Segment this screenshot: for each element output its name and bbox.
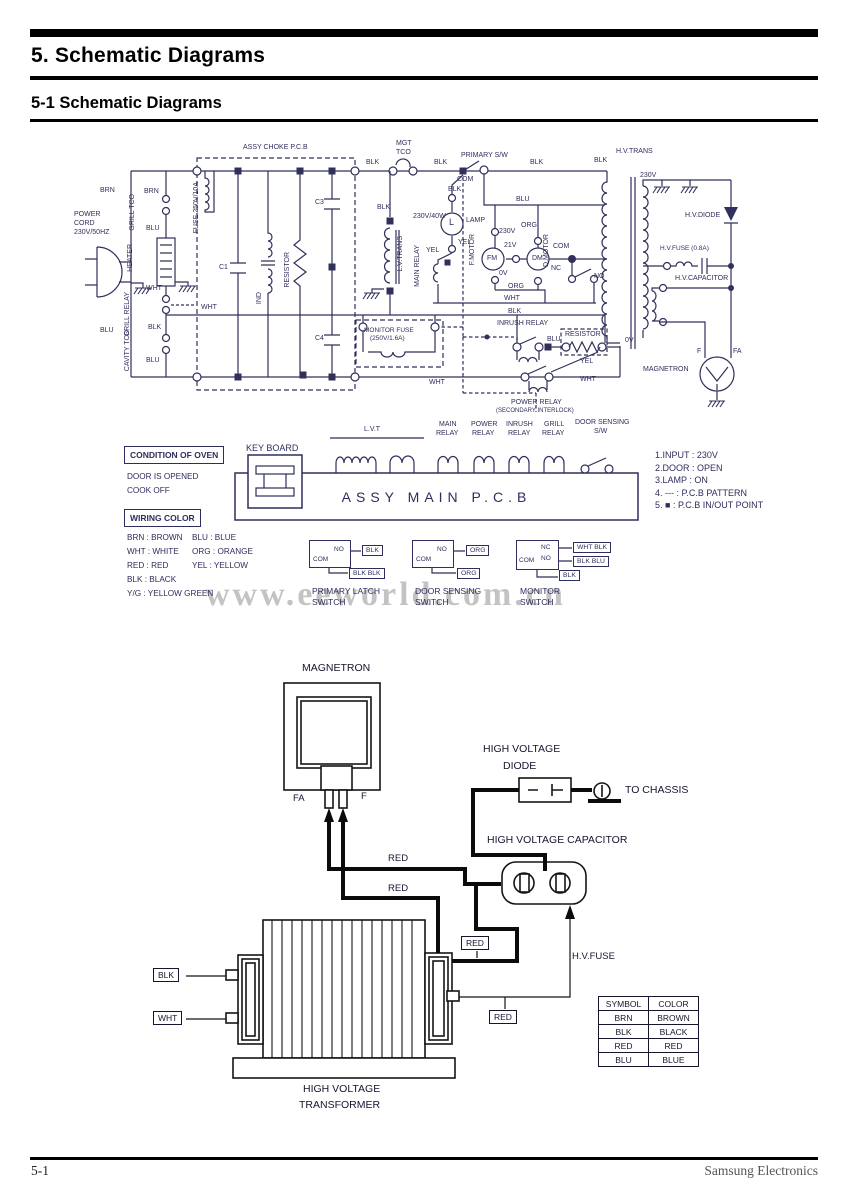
schematic-label: (SECONDARY INTERLOCK) <box>496 408 574 414</box>
schematic-label: INRUSH RELAY <box>497 320 548 327</box>
terminal-label: NO <box>437 546 447 553</box>
monitor-switch-box <box>516 540 559 570</box>
schematic-label: HEATER <box>127 244 134 272</box>
wiring-color-entry: YEL : YELLOW <box>192 559 253 573</box>
schematic-label: GRILL TCO <box>129 194 136 231</box>
magnetron-title: MAGNETRON <box>302 662 370 674</box>
schematic-label: H.V.DIODE <box>685 212 720 219</box>
condition-line: COOK OFF <box>127 484 198 498</box>
wiring-color-entry: ORG : ORANGE <box>192 545 253 559</box>
schematic-label: 21V <box>504 242 516 249</box>
switch-caption: MONITORSWITCH <box>520 586 560 608</box>
schematic-label: C4 <box>315 335 324 342</box>
schematic-label: BLK <box>377 204 390 211</box>
table-cell: BLUE <box>649 1053 699 1067</box>
switch-caption: DOOR SENSINGSWITCH <box>415 586 481 608</box>
hv-capacitor-label: HIGH VOLTAGE CAPACITOR <box>487 834 627 846</box>
terminal-label: NO <box>334 546 344 553</box>
schematic-label: BRN <box>144 188 159 195</box>
condition-of-oven-lines: DOOR IS OPENEDCOOK OFF <box>127 470 198 498</box>
table-cell: BROWN <box>649 1011 699 1025</box>
schematic-label: BLU <box>146 357 160 364</box>
red-tag: RED <box>489 1010 517 1024</box>
note-line: 4. --- : P.C.B PATTERN <box>655 487 763 500</box>
schematic-label: NO <box>594 273 605 280</box>
wiring-color-entry: BLK : BLACK <box>127 573 213 587</box>
schematic-label: GRILL <box>544 421 564 428</box>
terminal-label: NC <box>541 544 550 551</box>
schematic-label: BRN <box>100 187 115 194</box>
table-header: SYMBOL <box>599 997 649 1011</box>
table-cell: BLACK <box>649 1025 699 1039</box>
wire-tag: BLK BLK <box>349 568 385 579</box>
manual-page: 5. Schematic Diagrams 5-1 Schematic Diag… <box>0 0 849 1193</box>
wht-tag: WHT <box>153 1011 182 1025</box>
table-cell: BLK <box>599 1025 649 1039</box>
schematic-label: MAIN RELAY <box>414 245 421 287</box>
schematic-label: 230V/40W <box>413 213 446 220</box>
schematic-label: COM <box>553 243 569 250</box>
table-cell: BRN <box>599 1011 649 1025</box>
notes-list: 1.INPUT : 230V2.DOOR : OPEN3.LAMP : ON4.… <box>655 449 763 512</box>
schematic-label: FM <box>487 255 497 262</box>
assy-main-pcb-label: ASSY MAIN P.C.B <box>235 489 638 505</box>
schematic-label: BLU <box>146 225 160 232</box>
to-chassis-label: TO CHASSIS <box>625 784 688 796</box>
hv-fuse-label: H.V.FUSE <box>572 951 615 962</box>
schematic-label: BLK <box>366 159 379 166</box>
terminal-label: COM <box>416 556 431 563</box>
schematic-label: POWER <box>74 211 100 218</box>
schematic-label: BLK <box>434 159 447 166</box>
schematic-label: ORG <box>508 283 524 290</box>
schematic-label: TCO <box>396 149 411 156</box>
wire-tag: WHT BLK <box>573 542 611 553</box>
note-line: 2.DOOR : OPEN <box>655 462 763 475</box>
schematic-label: RESISTOR <box>565 331 601 338</box>
schematic-label: F.MOTOR <box>469 234 476 265</box>
schematic-label: C1 <box>219 264 228 271</box>
schematic-label: YEL <box>426 247 439 254</box>
schematic-label: BLK <box>530 159 543 166</box>
symbol-color-table: SYMBOLCOLORBRNBROWNBLKBLACKREDREDBLUBLUE <box>598 996 699 1067</box>
schematic-label: WHT <box>580 376 596 383</box>
schematic-label: RELAY <box>472 430 494 437</box>
table-header: COLOR <box>649 997 699 1011</box>
schematic-label: MGT <box>396 140 412 147</box>
f-label: F <box>361 791 367 802</box>
schematic-label: (250V/1.6A) <box>370 336 405 343</box>
schematic-label: WHT <box>504 295 520 302</box>
schematic-label: RELAY <box>508 430 530 437</box>
note-line: 5. ■ : P.C.B IN/OUT POINT <box>655 499 763 512</box>
schematic-label: POWER RELAY <box>511 399 562 406</box>
table-row: BLKBLACK <box>599 1025 699 1039</box>
condition-line: DOOR IS OPENED <box>127 470 198 484</box>
wire-tag: BLK <box>362 545 383 556</box>
schematic-label: BLK <box>448 186 461 193</box>
wire-tag: BLK BLU <box>573 556 609 567</box>
hv-diode-label-1: HIGH VOLTAGE <box>483 743 560 755</box>
schematic-label: H.V.FUSE (0.8A) <box>660 246 709 253</box>
hv-transformer-label-2: TRANSFORMER <box>299 1099 380 1111</box>
red-wire-label: RED <box>388 883 408 894</box>
schematic-label: S/W <box>594 428 607 435</box>
wiring-color-col2: BLU : BLUEORG : ORANGEYEL : YELLOW <box>192 531 253 573</box>
schematic-label: IND <box>256 292 263 304</box>
schematic-label: MAIN <box>439 421 457 428</box>
table-row: BLUBLUE <box>599 1053 699 1067</box>
schematic-label: WHT <box>201 304 217 311</box>
schematic-label: CAVITY TCO <box>124 330 131 371</box>
wire-tag: BLK <box>559 570 580 581</box>
switch-caption: PRIMARY LATCHSWITCH <box>312 586 380 608</box>
schematic-label: L.V.TRANS <box>397 236 404 272</box>
keyboard-label: KEY BOARD <box>246 443 298 453</box>
schematic-label: 230V/50HZ <box>74 229 109 236</box>
fa-label: FA <box>293 793 305 804</box>
schematic-label: MAGNETRON <box>643 366 689 373</box>
schematic-label: POWER <box>471 421 497 428</box>
schematic-label: WHT <box>146 285 162 292</box>
red-tag: RED <box>461 936 489 950</box>
schematic-label: C3 <box>315 199 324 206</box>
schematic-label: 230V <box>640 172 656 179</box>
wiring-color-box: WIRING COLOR <box>124 509 201 527</box>
schematic-label: D.MOTOR <box>543 234 550 267</box>
condition-of-oven-box: CONDITION OF OVEN <box>124 446 224 464</box>
note-line: 3.LAMP : ON <box>655 474 763 487</box>
wire-tag: ORG <box>457 568 480 579</box>
hv-transformer-label-1: HIGH VOLTAGE <box>303 1083 380 1095</box>
schematic-label: BLK <box>594 157 607 164</box>
terminal-label: NO <box>541 555 551 562</box>
wiring-color-entry: BLU : BLUE <box>192 531 253 545</box>
table-row: BRNBROWN <box>599 1011 699 1025</box>
schematic-label: ORG <box>521 222 537 229</box>
schematic-label: RELAY <box>436 430 458 437</box>
schematic-label: YEL <box>580 358 593 365</box>
schematic-label: BLU <box>100 327 114 334</box>
schematic-label: L.V.T <box>364 426 380 433</box>
door-sensing-switch-box <box>412 540 454 568</box>
terminal-label: COM <box>519 557 534 564</box>
red-wire-label: RED <box>388 853 408 864</box>
schematic-label: LAMP <box>466 217 485 224</box>
schematic-label: MONITOR FUSE <box>364 328 414 335</box>
schematic-label: BLU <box>516 196 530 203</box>
schematic-label: NC <box>551 265 561 272</box>
schematic-label: DM <box>532 255 543 262</box>
schematic-label: RESISTOR <box>284 252 291 288</box>
schematic-label: L <box>449 218 454 227</box>
schematic-label: CORD <box>74 220 95 227</box>
table-cell: RED <box>599 1039 649 1053</box>
blk-tag: BLK <box>153 968 179 982</box>
schematic-label: FA <box>733 348 742 355</box>
schematic-label: RELAY <box>542 430 564 437</box>
terminal-label: COM <box>313 556 328 563</box>
schematic-label: COM <box>457 176 473 183</box>
table-cell: BLU <box>599 1053 649 1067</box>
watermark: www.eeworld.com.cn <box>205 576 566 614</box>
note-line: 1.INPUT : 230V <box>655 449 763 462</box>
schematic-label: INRUSH <box>506 421 533 428</box>
schematic-label: 0V <box>499 270 508 277</box>
schematic-label: BLK <box>148 324 161 331</box>
primary-latch-switch-box <box>309 540 351 568</box>
schematic-label: FUSE 250V/10A <box>193 182 200 233</box>
schematic-label: WHT <box>429 379 445 386</box>
wiring-color-entry: Y/G : YELLOW GREEN <box>127 587 213 601</box>
schematic-label: BLK <box>508 308 521 315</box>
schematic-label: ASSY CHOKE P.C.B <box>243 144 308 151</box>
table-cell: RED <box>649 1039 699 1053</box>
schematic-label: PRIMARY S/W <box>461 152 508 159</box>
table-row: REDRED <box>599 1039 699 1053</box>
schematic-label: BLU <box>547 336 561 343</box>
schematic-label: DOOR SENSING <box>575 419 629 426</box>
wire-tag: ORG <box>466 545 489 556</box>
hv-diode-label-2: DIODE <box>503 760 536 772</box>
schematic-label: H.V.TRANS <box>616 148 653 155</box>
schematic-label: H.V.CAPACITOR <box>675 275 728 282</box>
schematic-label: F <box>697 348 701 355</box>
schematic-label: 230V <box>499 228 515 235</box>
schematic-label: 0V <box>625 337 634 344</box>
